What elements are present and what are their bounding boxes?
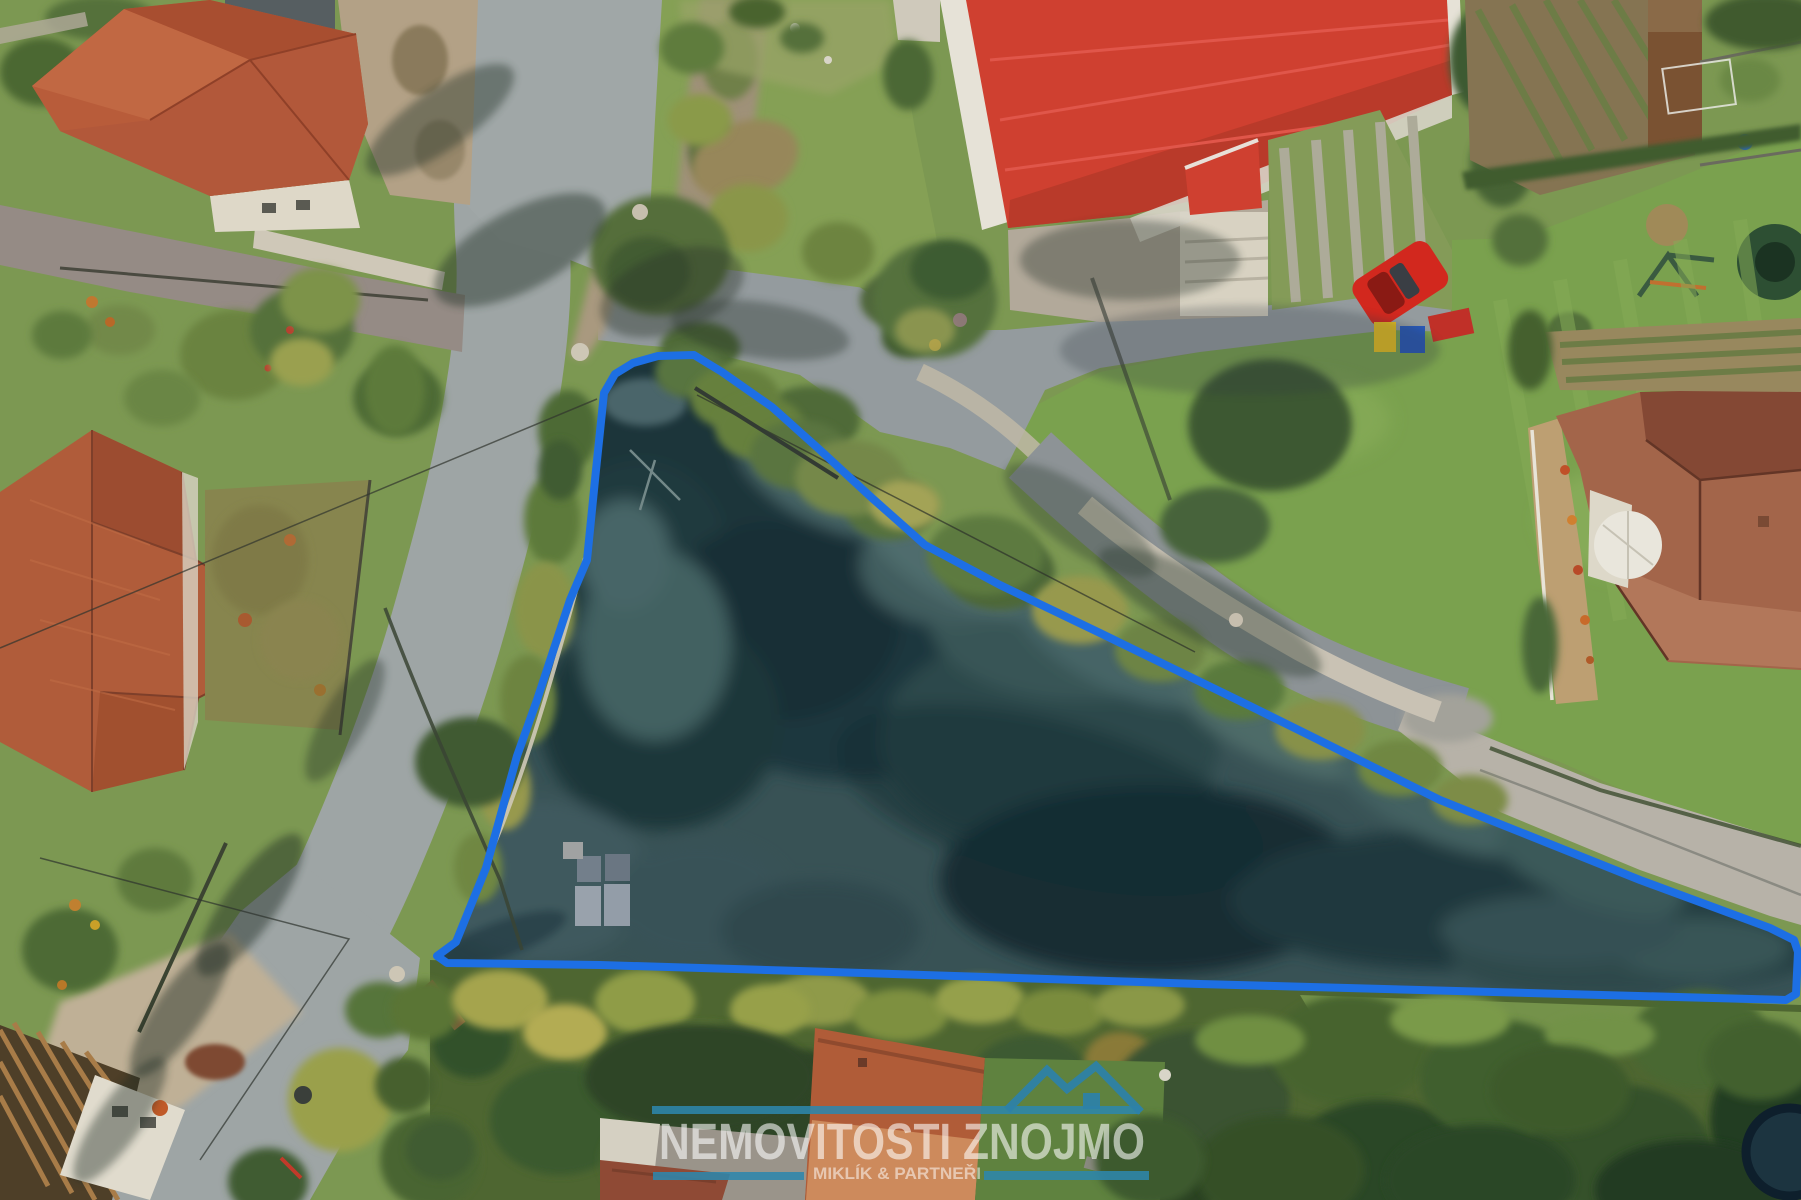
svg-text:NEMOVITOSTI ZNOJMO: NEMOVITOSTI ZNOJMO — [659, 1113, 1145, 1170]
svg-text:MIKLÍK & PARTNEŘI: MIKLÍK & PARTNEŘI — [813, 1164, 981, 1183]
